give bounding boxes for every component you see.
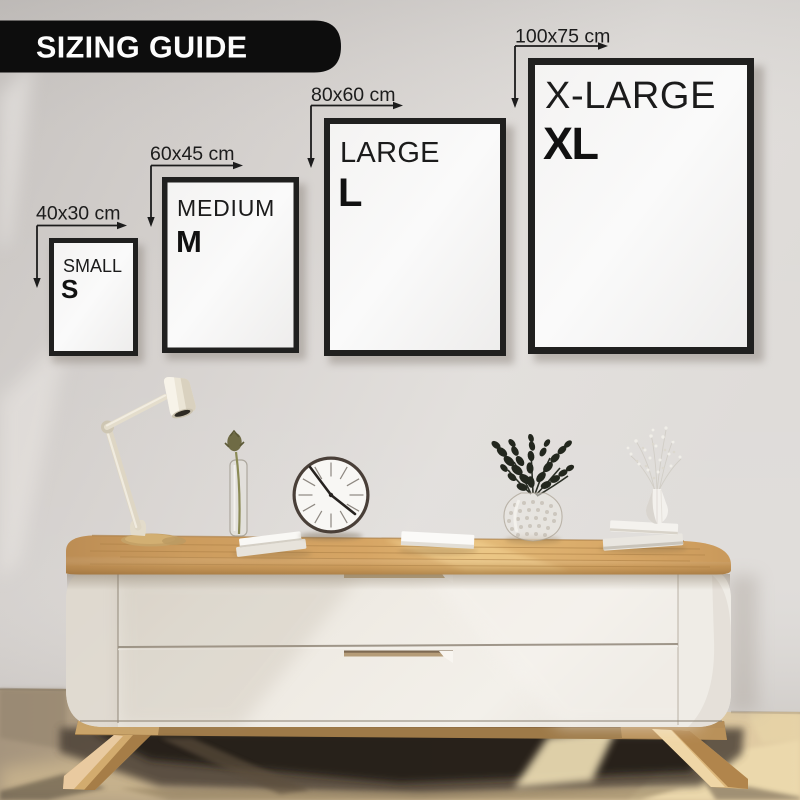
svg-text:SMALL: SMALL (63, 256, 122, 276)
svg-text:100x75 cm: 100x75 cm (515, 26, 610, 48)
svg-text:X-LARGE: X-LARGE (545, 75, 716, 117)
svg-text:S: S (61, 274, 78, 304)
svg-text:MEDIUM: MEDIUM (177, 195, 275, 221)
svg-text:60x45 cm: 60x45 cm (150, 143, 235, 165)
svg-text:L: L (338, 171, 362, 215)
svg-text:SIZING GUIDE: SIZING GUIDE (36, 31, 248, 65)
svg-text:LARGE: LARGE (340, 137, 440, 169)
svg-text:XL: XL (543, 118, 599, 169)
svg-text:80x60 cm: 80x60 cm (311, 84, 396, 106)
svg-text:40x30 cm: 40x30 cm (36, 203, 121, 225)
svg-text:M: M (176, 224, 202, 259)
